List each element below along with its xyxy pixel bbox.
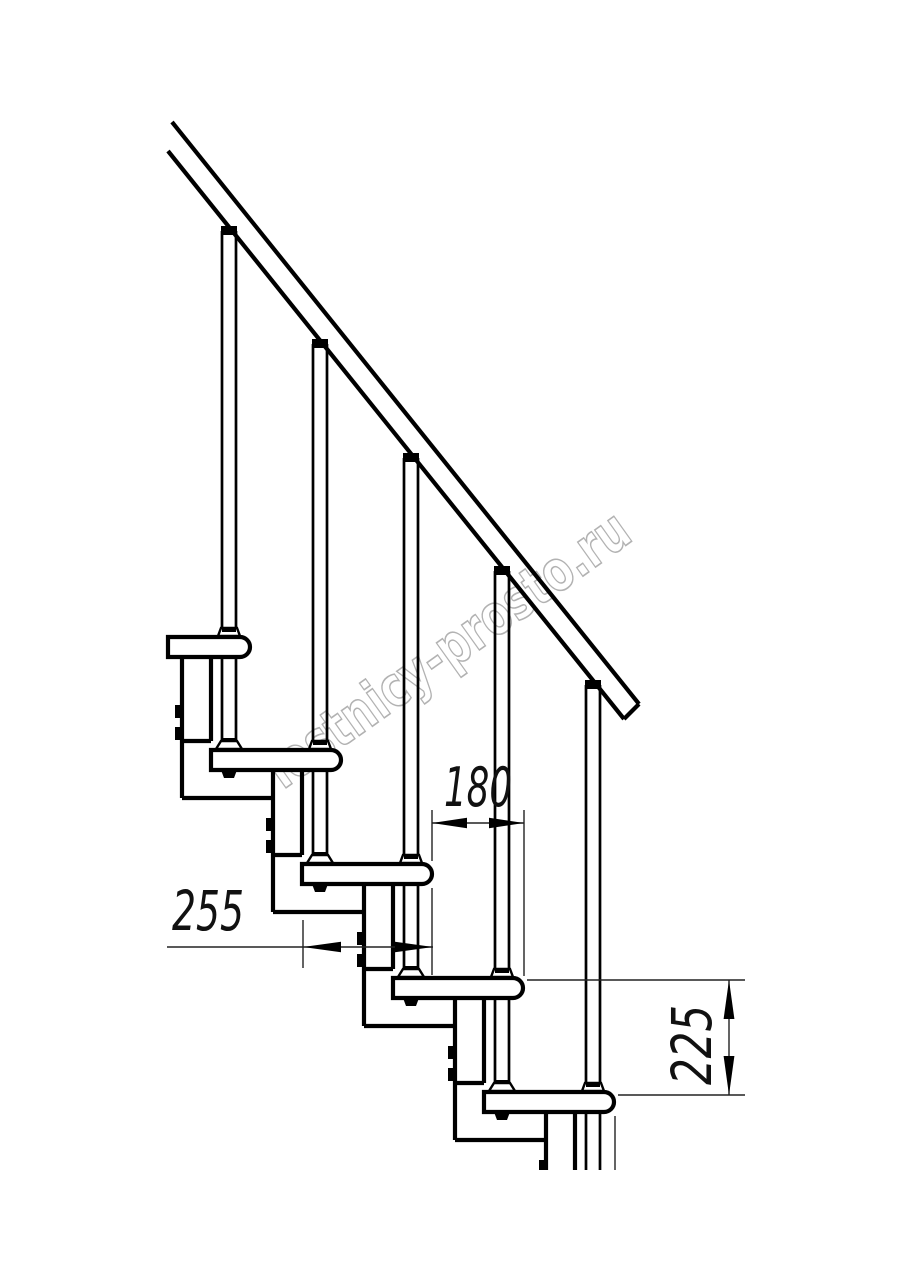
dimension-label-255: 255 bbox=[172, 879, 244, 943]
dimension-label-180: 180 bbox=[444, 756, 512, 819]
rod-below-tread-5 bbox=[586, 1112, 600, 1170]
arrowhead-down bbox=[724, 1056, 735, 1095]
arrowhead-left bbox=[432, 818, 467, 828]
dimension-225: 225 bbox=[527, 980, 745, 1170]
module-clip bbox=[175, 705, 182, 718]
baluster-collar-cap bbox=[313, 741, 327, 745]
module-clip bbox=[266, 840, 273, 853]
arrowhead-up bbox=[724, 980, 735, 1019]
tread-1 bbox=[168, 637, 250, 657]
module-clip bbox=[539, 1160, 546, 1170]
tread-4 bbox=[393, 978, 523, 998]
tread-5 bbox=[484, 1092, 614, 1112]
module-clip bbox=[448, 1068, 455, 1081]
baluster-collar-cap bbox=[495, 969, 509, 973]
module-clip bbox=[266, 818, 273, 831]
module-tube-5 bbox=[546, 1112, 575, 1170]
baluster-top-connector bbox=[312, 339, 328, 348]
baluster-top-connector bbox=[221, 226, 237, 235]
baluster-collar-cap bbox=[404, 855, 418, 859]
rod-below-tread-3 bbox=[404, 884, 418, 969]
baluster-foot bbox=[398, 969, 424, 977]
baluster-foot bbox=[307, 855, 333, 863]
staircase-drawing-page: lestnicy-prosto.ru bbox=[0, 0, 914, 1280]
baluster-collar-cap bbox=[586, 1083, 600, 1087]
arrowhead-left bbox=[303, 942, 341, 952]
baluster-collar-cap bbox=[222, 628, 236, 632]
staircase-technical-drawing: lestnicy-prosto.ru bbox=[0, 0, 914, 1280]
rod-below-tread-4 bbox=[495, 998, 509, 1083]
baluster-2 bbox=[313, 344, 327, 741]
baluster-foot-cap bbox=[222, 738, 236, 742]
baluster-foot-cap bbox=[404, 966, 418, 970]
baluster-top-connector bbox=[585, 680, 601, 689]
module-clip bbox=[175, 727, 182, 740]
baluster-foot bbox=[216, 741, 242, 749]
handrail-end-cap bbox=[624, 704, 639, 719]
baluster-top-connector bbox=[494, 566, 510, 575]
tread-3 bbox=[302, 864, 432, 884]
baluster-foot-cap bbox=[313, 852, 327, 856]
arrowhead-right bbox=[395, 942, 433, 952]
handrail-upper-line bbox=[172, 122, 639, 704]
dimension-label-225: 225 bbox=[660, 1005, 724, 1085]
module-clip bbox=[448, 1046, 455, 1059]
arrowhead-right bbox=[489, 818, 524, 828]
module-clip bbox=[357, 932, 364, 945]
tread-2 bbox=[211, 750, 341, 770]
baluster-foot bbox=[489, 1083, 515, 1091]
baluster-top-connector bbox=[403, 453, 419, 462]
baluster-5 bbox=[586, 685, 600, 1083]
module-clip bbox=[357, 954, 364, 967]
baluster-foot-cap bbox=[495, 1080, 509, 1084]
rod-below-tread-1 bbox=[222, 657, 236, 741]
baluster-1 bbox=[222, 231, 236, 628]
